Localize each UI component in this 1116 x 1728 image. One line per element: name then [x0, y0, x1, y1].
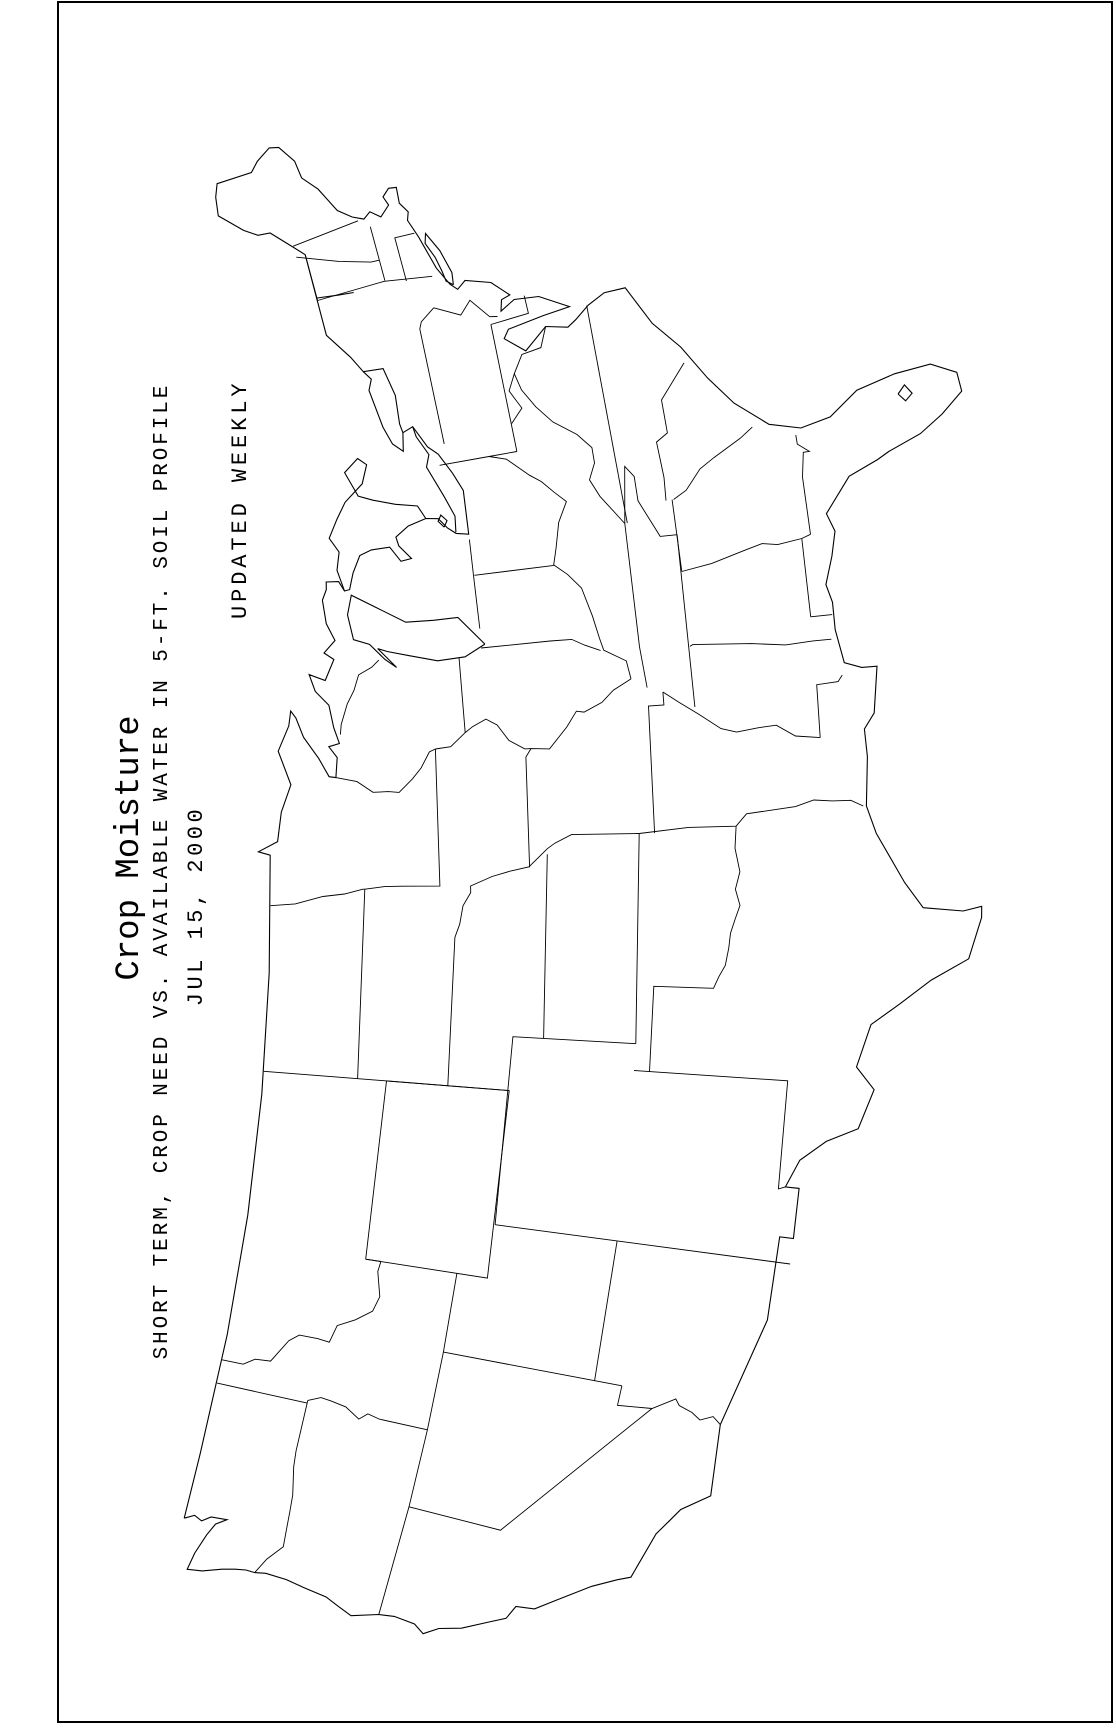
svg-text:JUL 15, 2000: JUL 15, 2000 [184, 806, 209, 1006]
svg-text:UPDATED WEEKLY: UPDATED WEEKLY [228, 380, 253, 619]
svg-text:SHORT TERM, CROP NEED VS. AVAI: SHORT TERM, CROP NEED VS. AVAILABLE WATE… [151, 383, 174, 1360]
svg-text:Crop Moisture: Crop Moisture [111, 715, 149, 980]
